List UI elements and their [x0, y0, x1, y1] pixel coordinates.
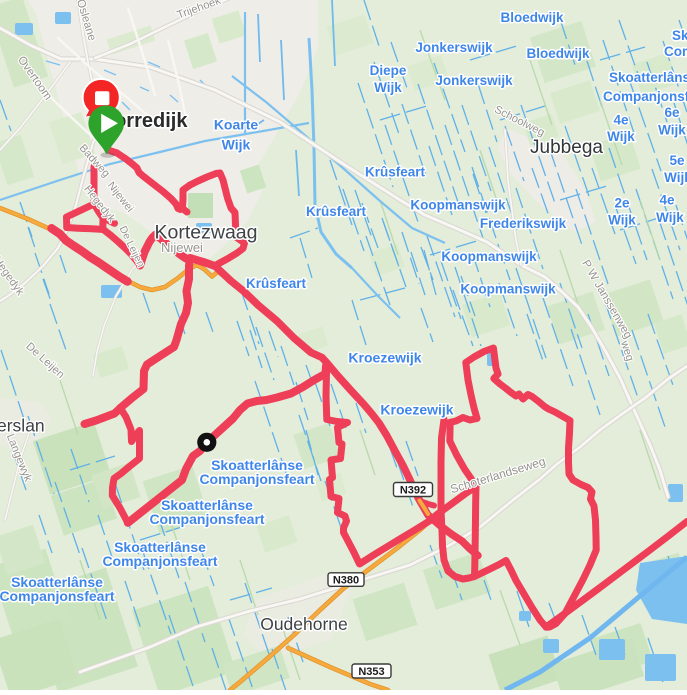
svg-text:Skoatterlâns: Skoatterlâns: [609, 70, 687, 85]
svg-text:Koarte: Koarte: [214, 117, 259, 133]
svg-text:Wijk: Wijk: [656, 210, 684, 225]
svg-text:Bloedwijk: Bloedwijk: [526, 46, 590, 61]
svg-text:Wijk: Wijk: [608, 212, 636, 227]
svg-text:Wijk: Wijk: [222, 137, 251, 153]
svg-text:Kroezewijk: Kroezewijk: [348, 350, 421, 366]
svg-text:Kroezewijk: Kroezewijk: [380, 402, 453, 418]
svg-text:4e: 4e: [613, 112, 629, 127]
svg-text:Oudehorne: Oudehorne: [260, 614, 348, 634]
svg-text:Diepe: Diepe: [370, 63, 407, 78]
svg-text:Nijewei: Nijewei: [161, 240, 203, 255]
svg-text:Companjonsfeart: Companjonsfeart: [102, 553, 217, 569]
svg-text:Krûsfeart: Krûsfeart: [306, 204, 367, 219]
svg-text:Koopmanswijk: Koopmanswijk: [410, 197, 506, 212]
svg-text:Companjonsfeart: Companjonsfeart: [0, 588, 115, 604]
svg-text:Jubbega: Jubbega: [530, 137, 603, 158]
svg-text:Comp: Comp: [664, 44, 687, 59]
svg-text:Jonkerswijk: Jonkerswijk: [435, 73, 513, 88]
svg-text:Wijk: Wijk: [607, 129, 635, 144]
svg-text:6e: 6e: [664, 105, 680, 120]
svg-text:N380: N380: [333, 575, 359, 587]
svg-text:Wijk: Wijk: [664, 170, 687, 185]
svg-text:Koopmanswijk: Koopmanswijk: [441, 249, 537, 264]
svg-text:N392: N392: [400, 485, 426, 497]
svg-text:Frederikswijk: Frederikswijk: [480, 216, 567, 231]
svg-text:Companjonsfea: Companjonsfea: [603, 89, 687, 104]
svg-text:Companjonsfeart: Companjonsfeart: [149, 511, 264, 527]
svg-text:Jonkerswijk: Jonkerswijk: [415, 40, 493, 55]
svg-text:Companjonsfeart: Companjonsfeart: [199, 471, 314, 487]
svg-text:Wijk: Wijk: [374, 80, 402, 95]
svg-text:Bloedwijk: Bloedwijk: [500, 10, 564, 25]
svg-text:Skoat: Skoat: [672, 28, 687, 43]
svg-text:2e: 2e: [614, 195, 630, 210]
svg-text:5e: 5e: [669, 153, 685, 168]
svg-text:Krûsfeart: Krûsfeart: [246, 276, 307, 291]
svg-text:Koopmanswijk: Koopmanswijk: [460, 281, 556, 296]
svg-text:Krûsfeart: Krûsfeart: [365, 164, 426, 179]
svg-text:N353: N353: [358, 666, 384, 678]
svg-text:erslan: erslan: [0, 416, 45, 436]
svg-text:4e: 4e: [659, 192, 675, 207]
svg-text:Wijk: Wijk: [658, 122, 686, 137]
